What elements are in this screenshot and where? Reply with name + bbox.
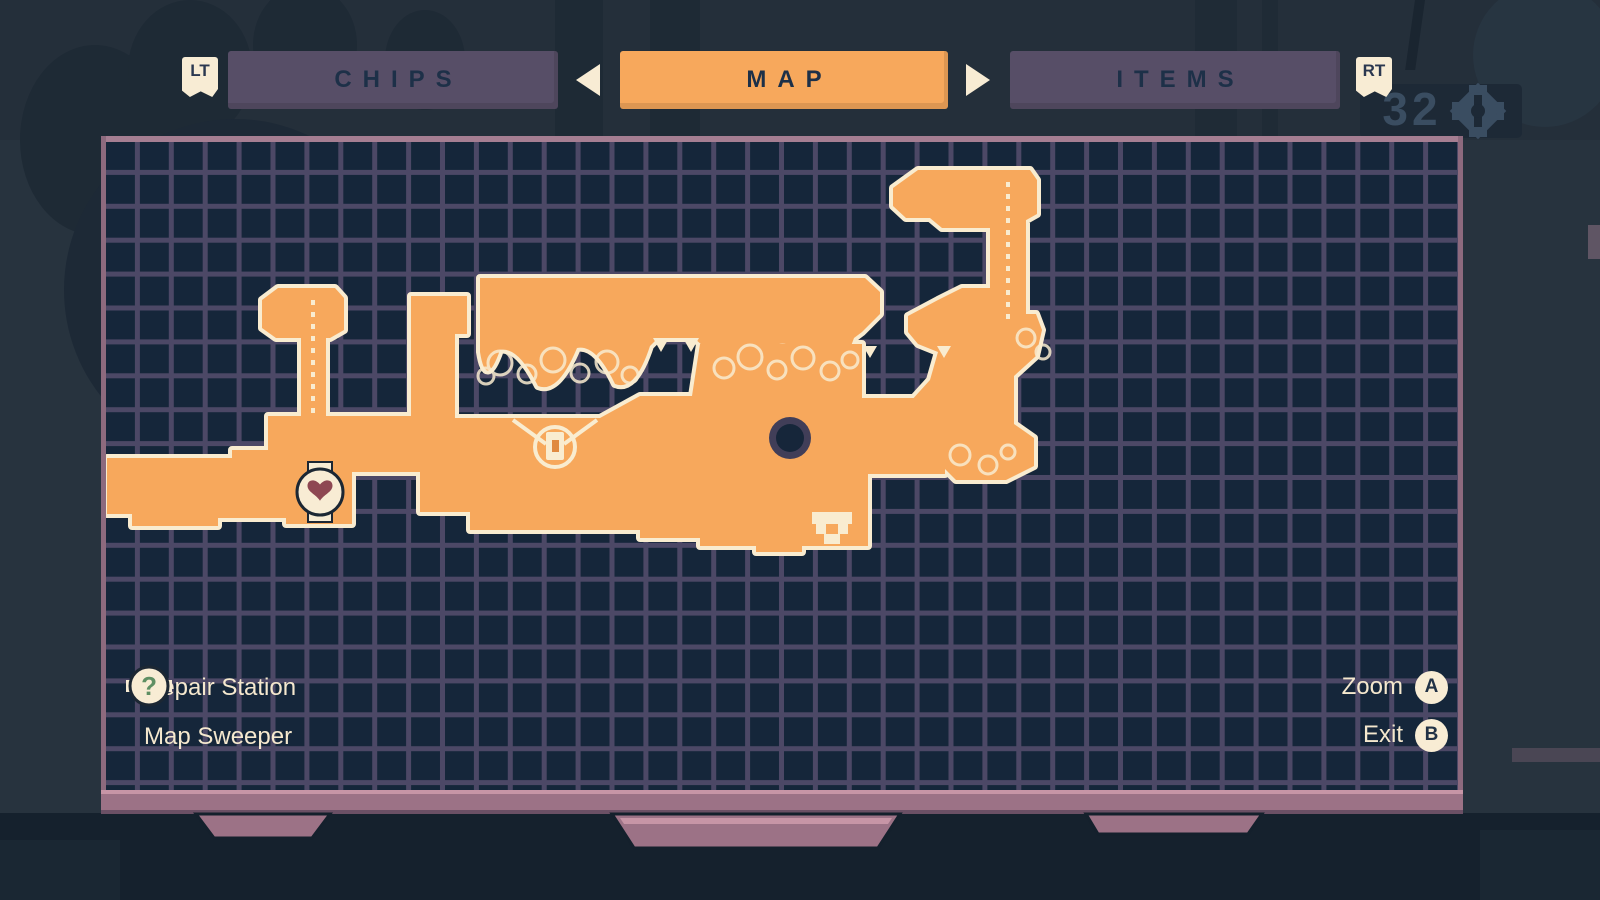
tab-chips[interactable]: CHIPS [228, 51, 558, 109]
zoom-label: Zoom [1342, 673, 1403, 701]
legend-map-sweeper: ? Map Sweeper [126, 712, 296, 761]
tab-items-label: ITEMS [1105, 66, 1244, 94]
exit-label: Exit [1363, 721, 1403, 749]
left-bumper-button[interactable]: LT [182, 57, 218, 97]
game-screen: 32 [0, 0, 1600, 900]
exit-control[interactable]: Exit B [1342, 711, 1448, 759]
player-position-marker [769, 417, 811, 459]
button-a[interactable]: A [1415, 671, 1448, 704]
button-b[interactable]: B [1415, 719, 1448, 752]
prev-tab-arrow-icon[interactable] [576, 64, 600, 96]
right-bumper-button[interactable]: RT [1356, 57, 1392, 97]
left-bumper-label: LT [190, 61, 210, 81]
tab-items[interactable]: ITEMS [1010, 51, 1340, 109]
legend-map-sweeper-label: Map Sweeper [144, 723, 292, 751]
question-mark-glyph: ? [141, 671, 157, 701]
tab-map-label: MAP [735, 66, 832, 94]
right-bumper-label: RT [1363, 61, 1386, 81]
map-controls: Zoom A Exit B [1342, 663, 1448, 759]
zoom-control[interactable]: Zoom A [1342, 663, 1448, 711]
tab-map[interactable]: MAP [620, 51, 948, 109]
next-tab-arrow-icon[interactable] [966, 64, 990, 96]
tab-chips-label: CHIPS [323, 66, 462, 94]
map-panel [101, 136, 1463, 848]
map-legend: Repair Station ? Map Sweeper [126, 663, 296, 761]
map-sweeper-icon: ? [126, 663, 172, 709]
tab-bar: LT CHIPS MAP ITEMS RT [0, 0, 1600, 140]
